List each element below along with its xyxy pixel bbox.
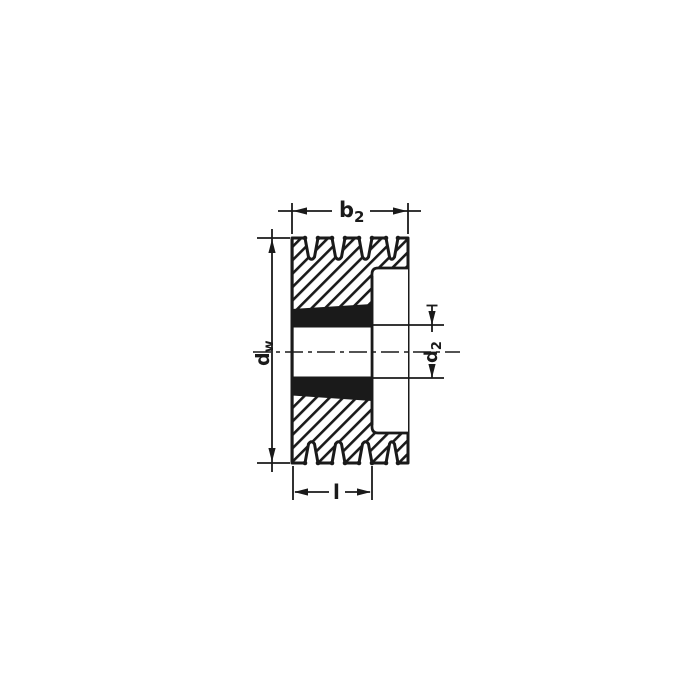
arrowhead [428, 364, 435, 378]
drawing-canvas: b2 dw d2 l [0, 0, 700, 700]
dimension-label-dw: dw [252, 340, 277, 366]
bush-recess [372, 268, 408, 433]
pulley-body [292, 236, 408, 466]
arrowhead [357, 488, 371, 495]
arrowhead [268, 239, 275, 253]
dimension-label-d2: d2 [421, 341, 445, 363]
dimension-b2: b2 [278, 198, 421, 234]
arrowhead [268, 448, 275, 462]
dimension-dw: dw [252, 229, 290, 472]
dimension-label-b2: b2 [339, 198, 364, 226]
dimension-l: l [293, 466, 372, 504]
arrowhead [428, 311, 435, 325]
dimension-label-l: l [333, 480, 340, 504]
pulley-technical-drawing: b2 dw d2 l [0, 0, 700, 700]
arrowhead [293, 207, 307, 214]
arrowhead [294, 488, 308, 495]
arrowhead [393, 207, 407, 214]
